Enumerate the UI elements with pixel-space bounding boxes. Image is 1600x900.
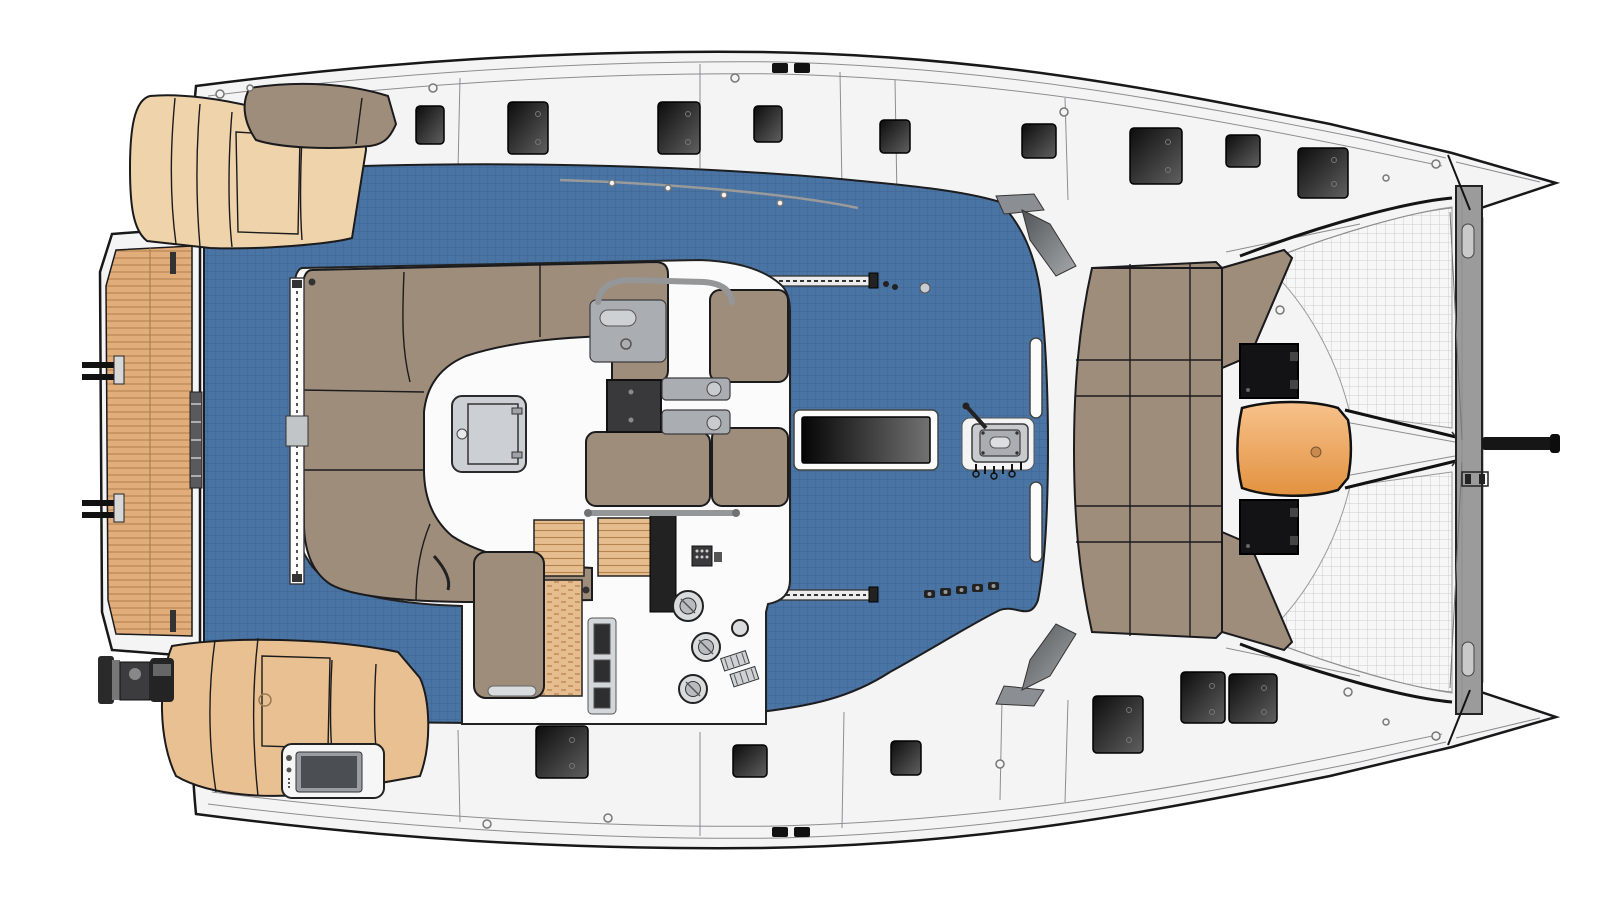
deck-hatch <box>1298 148 1348 198</box>
deck-plan-stage <box>0 0 1600 900</box>
seat-pad <box>710 290 788 382</box>
crossbeam <box>1450 186 1488 714</box>
deck-hatch <box>1181 672 1225 723</box>
seat-pad <box>712 428 788 506</box>
helm-seat <box>474 552 544 698</box>
bowsprit <box>1482 434 1560 453</box>
galley-sink <box>590 300 666 362</box>
deck-ring <box>1383 175 1389 181</box>
aft-backrest <box>245 84 396 148</box>
swim-platform <box>82 228 202 656</box>
deck-hatch <box>416 106 444 144</box>
deck-hatch <box>508 102 548 154</box>
deck-hatch <box>880 120 910 153</box>
deck-hatch <box>1229 674 1277 723</box>
deck-hatch <box>536 726 588 778</box>
seat-pad <box>586 432 710 506</box>
deck-hatch <box>1022 124 1056 158</box>
deck-hatch <box>891 741 921 775</box>
deck-hatch <box>1130 128 1182 184</box>
deck-hatch <box>733 745 767 777</box>
grab-rail <box>1030 338 1042 418</box>
deck-fitting <box>920 283 930 293</box>
deck-hatch <box>1226 135 1260 167</box>
deck-hatch <box>754 106 782 142</box>
deck-ring <box>1383 719 1389 725</box>
helm-console <box>588 618 616 714</box>
skylight <box>794 410 938 470</box>
outboard-engine <box>98 656 174 704</box>
aft-starboard-seating <box>98 638 428 798</box>
grab-rail <box>1030 482 1042 562</box>
transom-module <box>282 744 384 798</box>
mast-post <box>650 514 676 612</box>
companionway <box>607 380 661 432</box>
catamaran-deck-plan <box>0 0 1600 900</box>
foredeck-table <box>1238 402 1352 496</box>
foredeck-hatch <box>1240 500 1298 554</box>
deck-hatch <box>1093 696 1143 753</box>
deck-ring <box>1432 160 1440 168</box>
boarding-ladder <box>190 392 202 488</box>
deck-ring <box>1432 732 1440 740</box>
dinette-table <box>452 396 526 472</box>
deck-hatch <box>658 102 700 154</box>
foredeck-hatch <box>1240 344 1298 398</box>
